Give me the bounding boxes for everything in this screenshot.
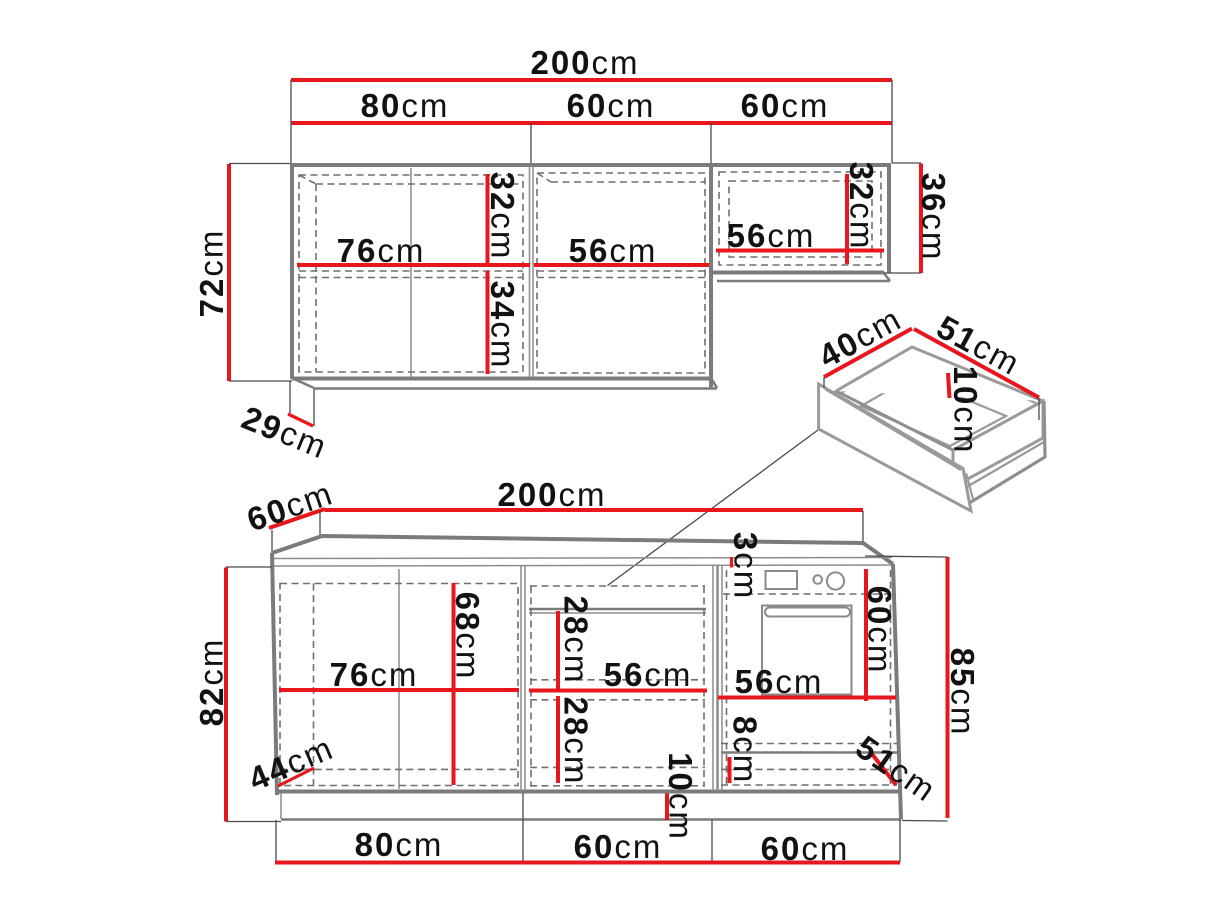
svg-text:56cm: 56cm xyxy=(727,217,816,254)
svg-text:8cm: 8cm xyxy=(727,716,764,784)
svg-text:10cm: 10cm xyxy=(663,752,700,841)
svg-text:36cm: 36cm xyxy=(916,173,953,262)
svg-text:28cm: 28cm xyxy=(558,697,595,786)
svg-text:32cm: 32cm xyxy=(844,162,881,251)
svg-text:3cm: 3cm xyxy=(728,532,765,600)
svg-text:60cm: 60cm xyxy=(567,87,656,124)
svg-text:60cm: 60cm xyxy=(862,586,899,675)
svg-text:60cm: 60cm xyxy=(761,830,850,867)
svg-text:76cm: 76cm xyxy=(337,232,426,269)
svg-text:32cm: 32cm xyxy=(485,172,522,261)
svg-text:76cm: 76cm xyxy=(330,656,419,693)
svg-text:80cm: 80cm xyxy=(355,826,444,863)
svg-text:85cm: 85cm xyxy=(945,648,982,737)
svg-text:72cm: 72cm xyxy=(193,229,230,318)
svg-text:200cm: 200cm xyxy=(530,44,639,81)
svg-text:82cm: 82cm xyxy=(193,638,230,727)
svg-text:56cm: 56cm xyxy=(569,232,658,269)
svg-text:80cm: 80cm xyxy=(361,87,450,124)
svg-text:56cm: 56cm xyxy=(604,656,693,693)
svg-text:60cm: 60cm xyxy=(574,828,663,865)
svg-text:34cm: 34cm xyxy=(485,281,522,370)
svg-text:28cm: 28cm xyxy=(558,596,595,685)
svg-text:200cm: 200cm xyxy=(497,476,606,513)
svg-text:60cm: 60cm xyxy=(741,87,830,124)
svg-text:68cm: 68cm xyxy=(450,592,487,681)
svg-text:56cm: 56cm xyxy=(735,663,824,700)
svg-text:10cm: 10cm xyxy=(948,366,985,455)
